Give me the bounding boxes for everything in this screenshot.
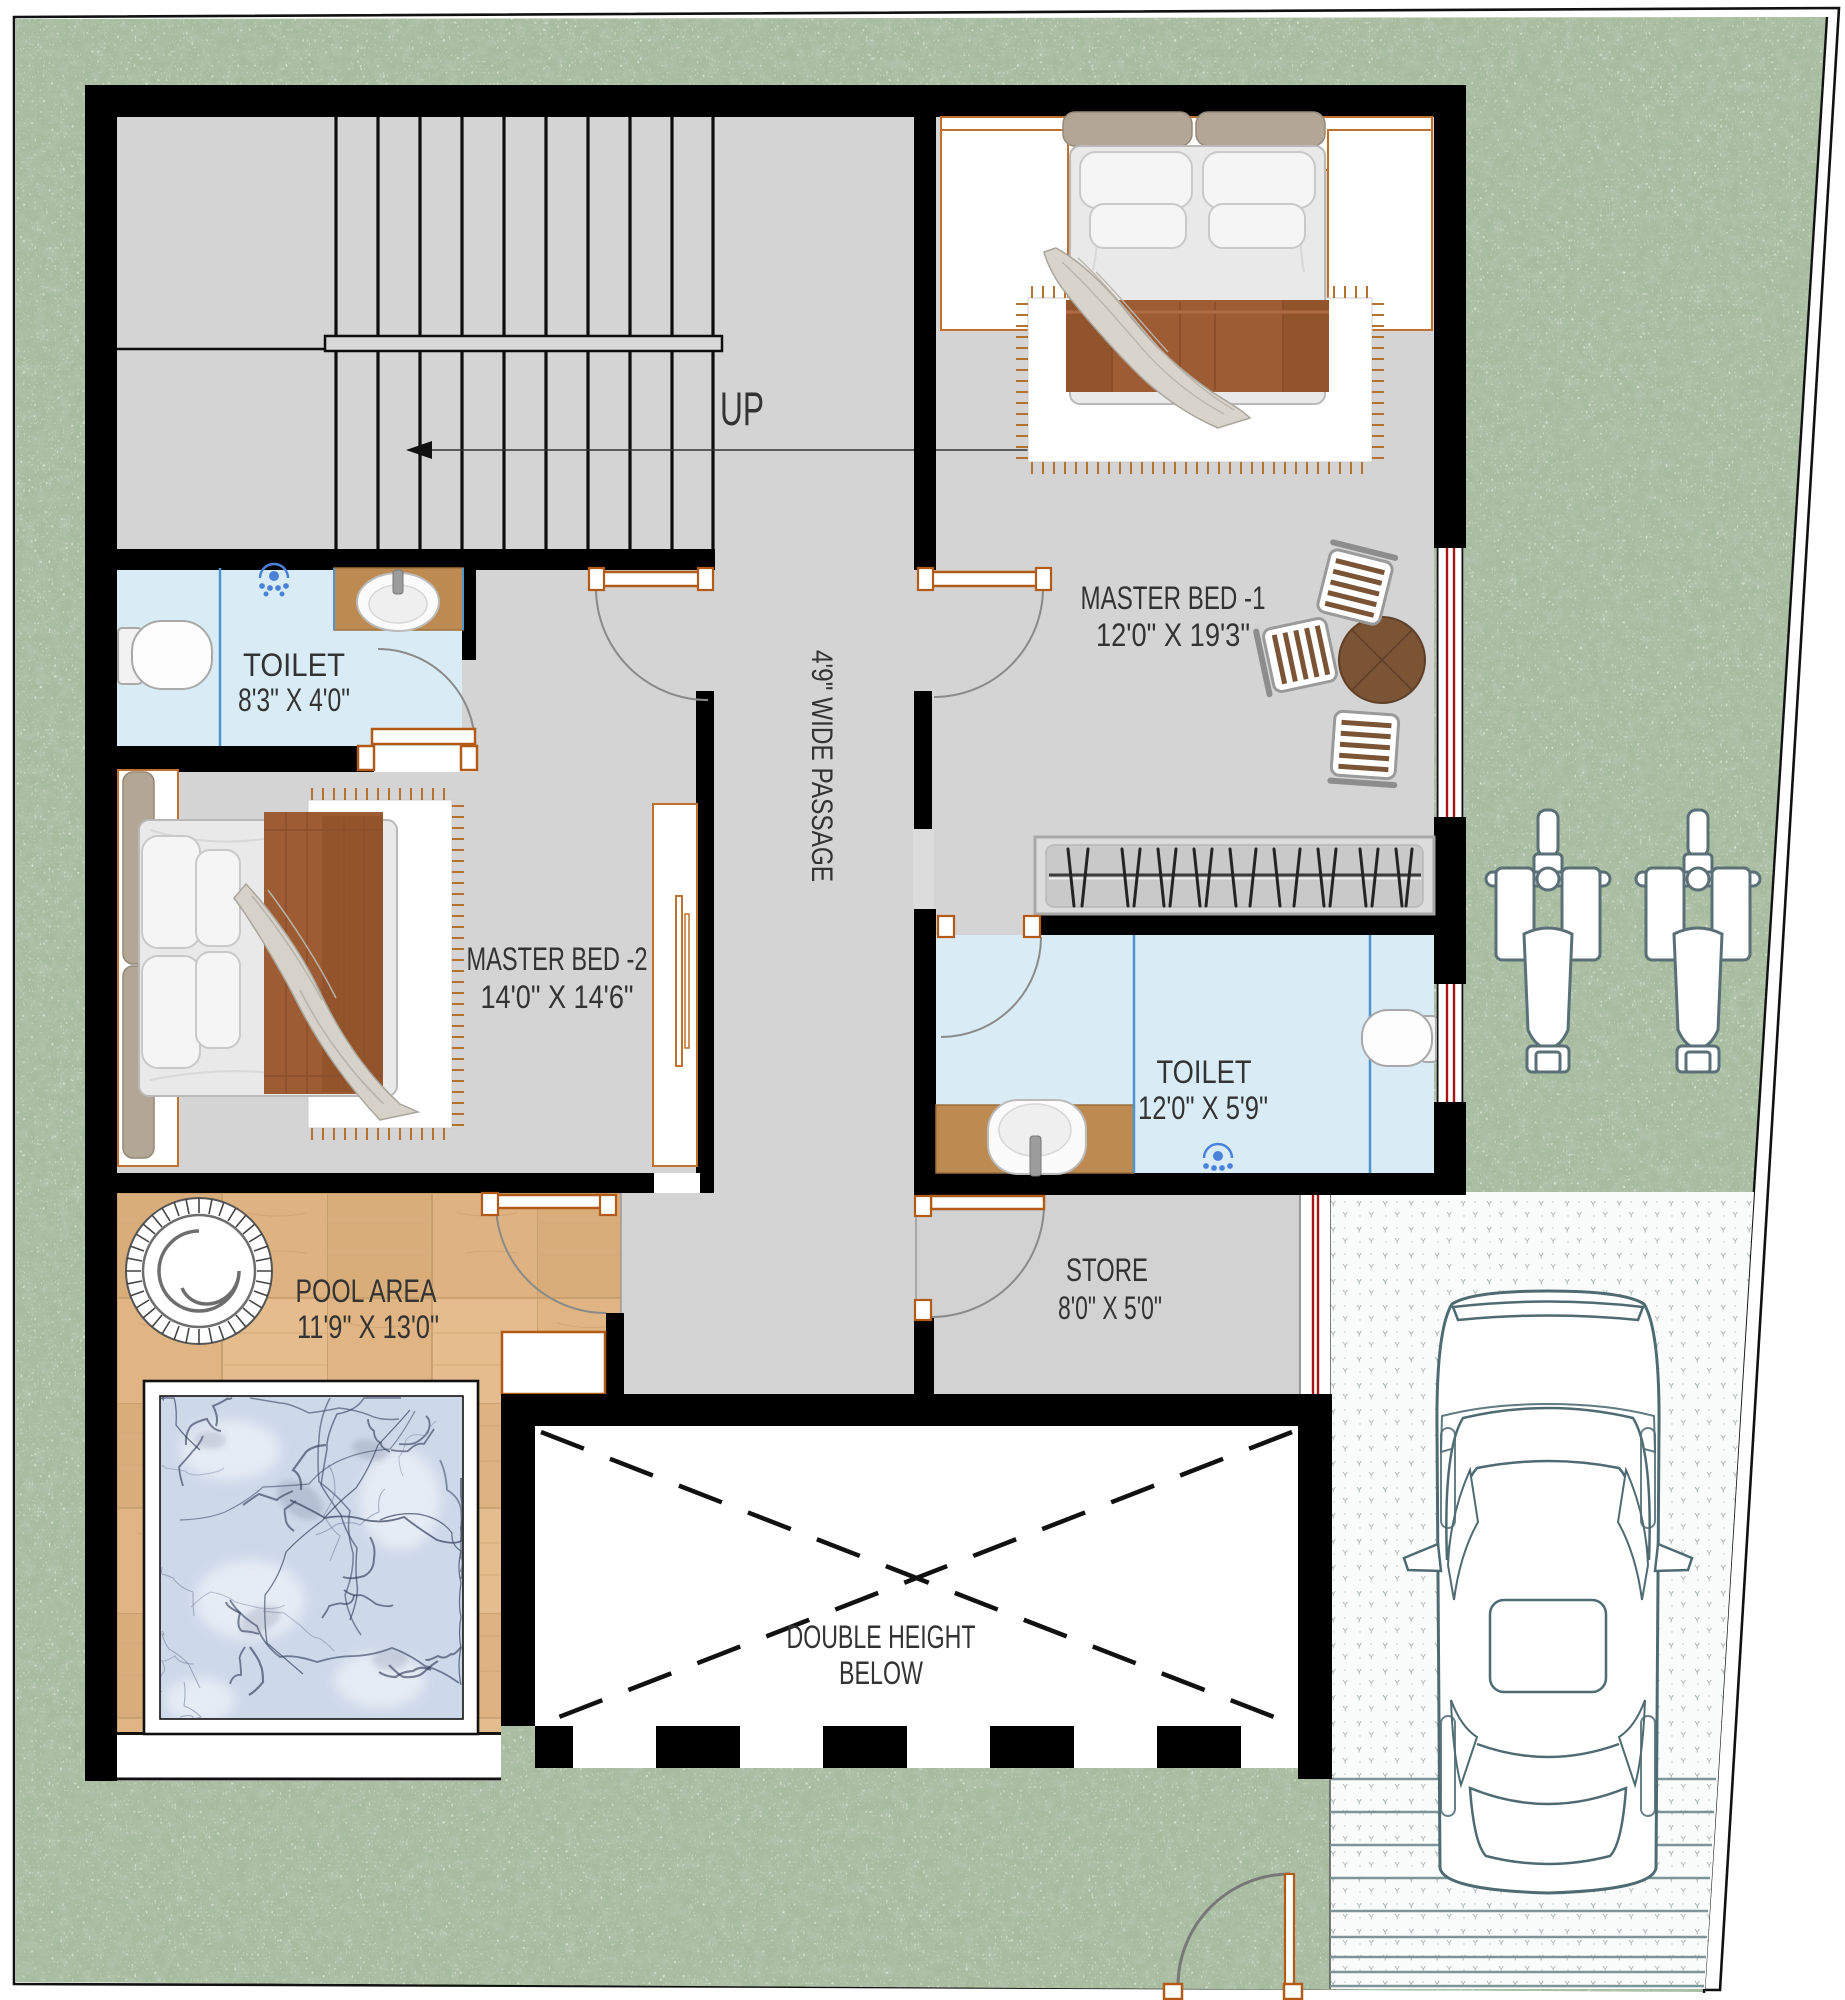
- svg-text:DOUBLE HEIGHT: DOUBLE HEIGHT: [787, 1619, 976, 1655]
- svg-text:BELOW: BELOW: [839, 1655, 924, 1691]
- svg-text:POOL AREA: POOL AREA: [296, 1273, 438, 1309]
- svg-text:14'0" X 14'6": 14'0" X 14'6": [481, 979, 634, 1015]
- svg-text:11'9" X 13'0": 11'9" X 13'0": [297, 1309, 439, 1345]
- svg-text:MASTER BED -1: MASTER BED -1: [1081, 580, 1266, 616]
- svg-text:12'0" X 19'3": 12'0" X 19'3": [1096, 617, 1250, 653]
- svg-text:TOILET: TOILET: [1157, 1054, 1252, 1090]
- svg-text:STORE: STORE: [1066, 1252, 1148, 1288]
- svg-text:UP: UP: [720, 382, 764, 435]
- svg-text:TOILET: TOILET: [243, 647, 345, 683]
- svg-text:12'0" X 5'9": 12'0" X 5'9": [1138, 1090, 1268, 1126]
- svg-text:4'9" WIDE PASSAGE: 4'9" WIDE PASSAGE: [805, 650, 838, 882]
- svg-text:8'0" X 5'0": 8'0" X 5'0": [1058, 1290, 1162, 1326]
- svg-text:MASTER BED -2: MASTER BED -2: [467, 941, 648, 977]
- svg-text:8'3" X 4'0": 8'3" X 4'0": [238, 682, 350, 718]
